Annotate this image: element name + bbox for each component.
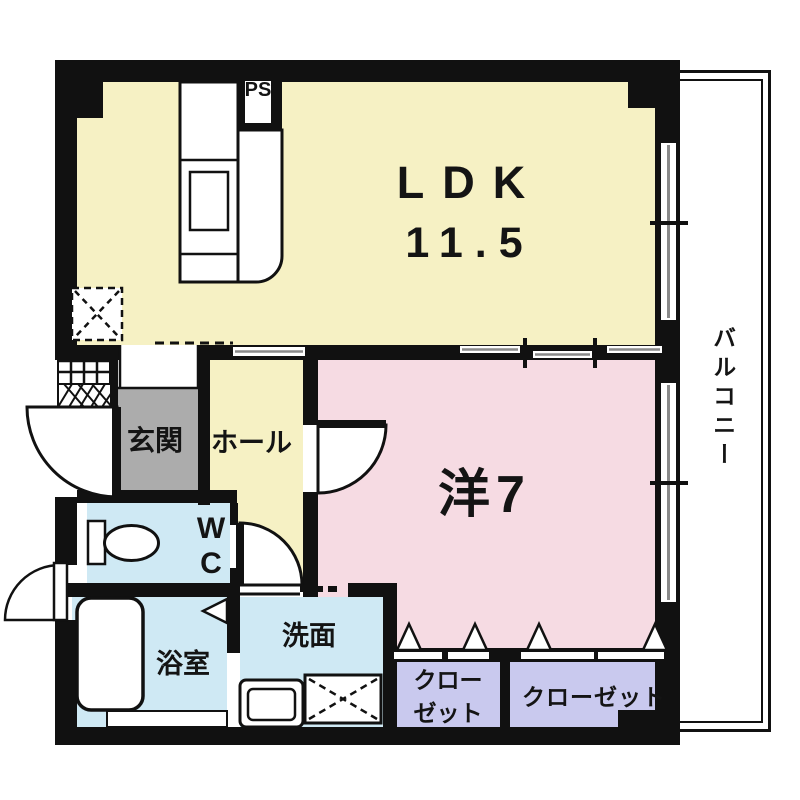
floorplan-drawing	[0, 0, 800, 800]
western-room-label: 洋7	[438, 464, 531, 526]
ldk-entrance-step-opening	[120, 345, 198, 388]
closet-small-label: クローゼット	[404, 664, 492, 731]
floorplan: LDK 11.5 洋7 玄関 ホール WC 浴室 洗面 クローゼット クローゼッ…	[0, 0, 800, 800]
ldk-size: 11.5	[360, 218, 580, 270]
hall-ldk-sliding-door	[233, 347, 305, 356]
ldk-name: LDK	[360, 156, 580, 210]
closet-door-tracks	[393, 651, 665, 660]
western-room-area-lower	[397, 597, 655, 650]
bathtub	[77, 598, 143, 710]
closet-large-label: クローゼット	[514, 684, 674, 712]
toilet-fixture	[88, 521, 159, 564]
pipe-shaft-label: PS	[243, 80, 273, 101]
bathroom-label: 浴室	[156, 648, 210, 680]
washing-machine-space	[305, 675, 381, 723]
bathroom-door-opening	[227, 653, 240, 713]
entrance-label: 玄関	[127, 424, 183, 458]
refrigerator-space	[72, 288, 122, 340]
washbasin	[240, 680, 303, 727]
hall-label: ホール	[211, 427, 292, 459]
balcony-label: バルコニー	[708, 326, 736, 471]
toilet-label: WC	[190, 512, 232, 581]
bathroom-threshold	[107, 711, 227, 727]
meter-box-door	[5, 563, 67, 620]
kitchen-sink	[190, 172, 228, 230]
washroom-label: 洗面	[282, 620, 336, 652]
ldk-label: LDK 11.5	[360, 156, 580, 270]
entrance-door	[27, 407, 121, 499]
